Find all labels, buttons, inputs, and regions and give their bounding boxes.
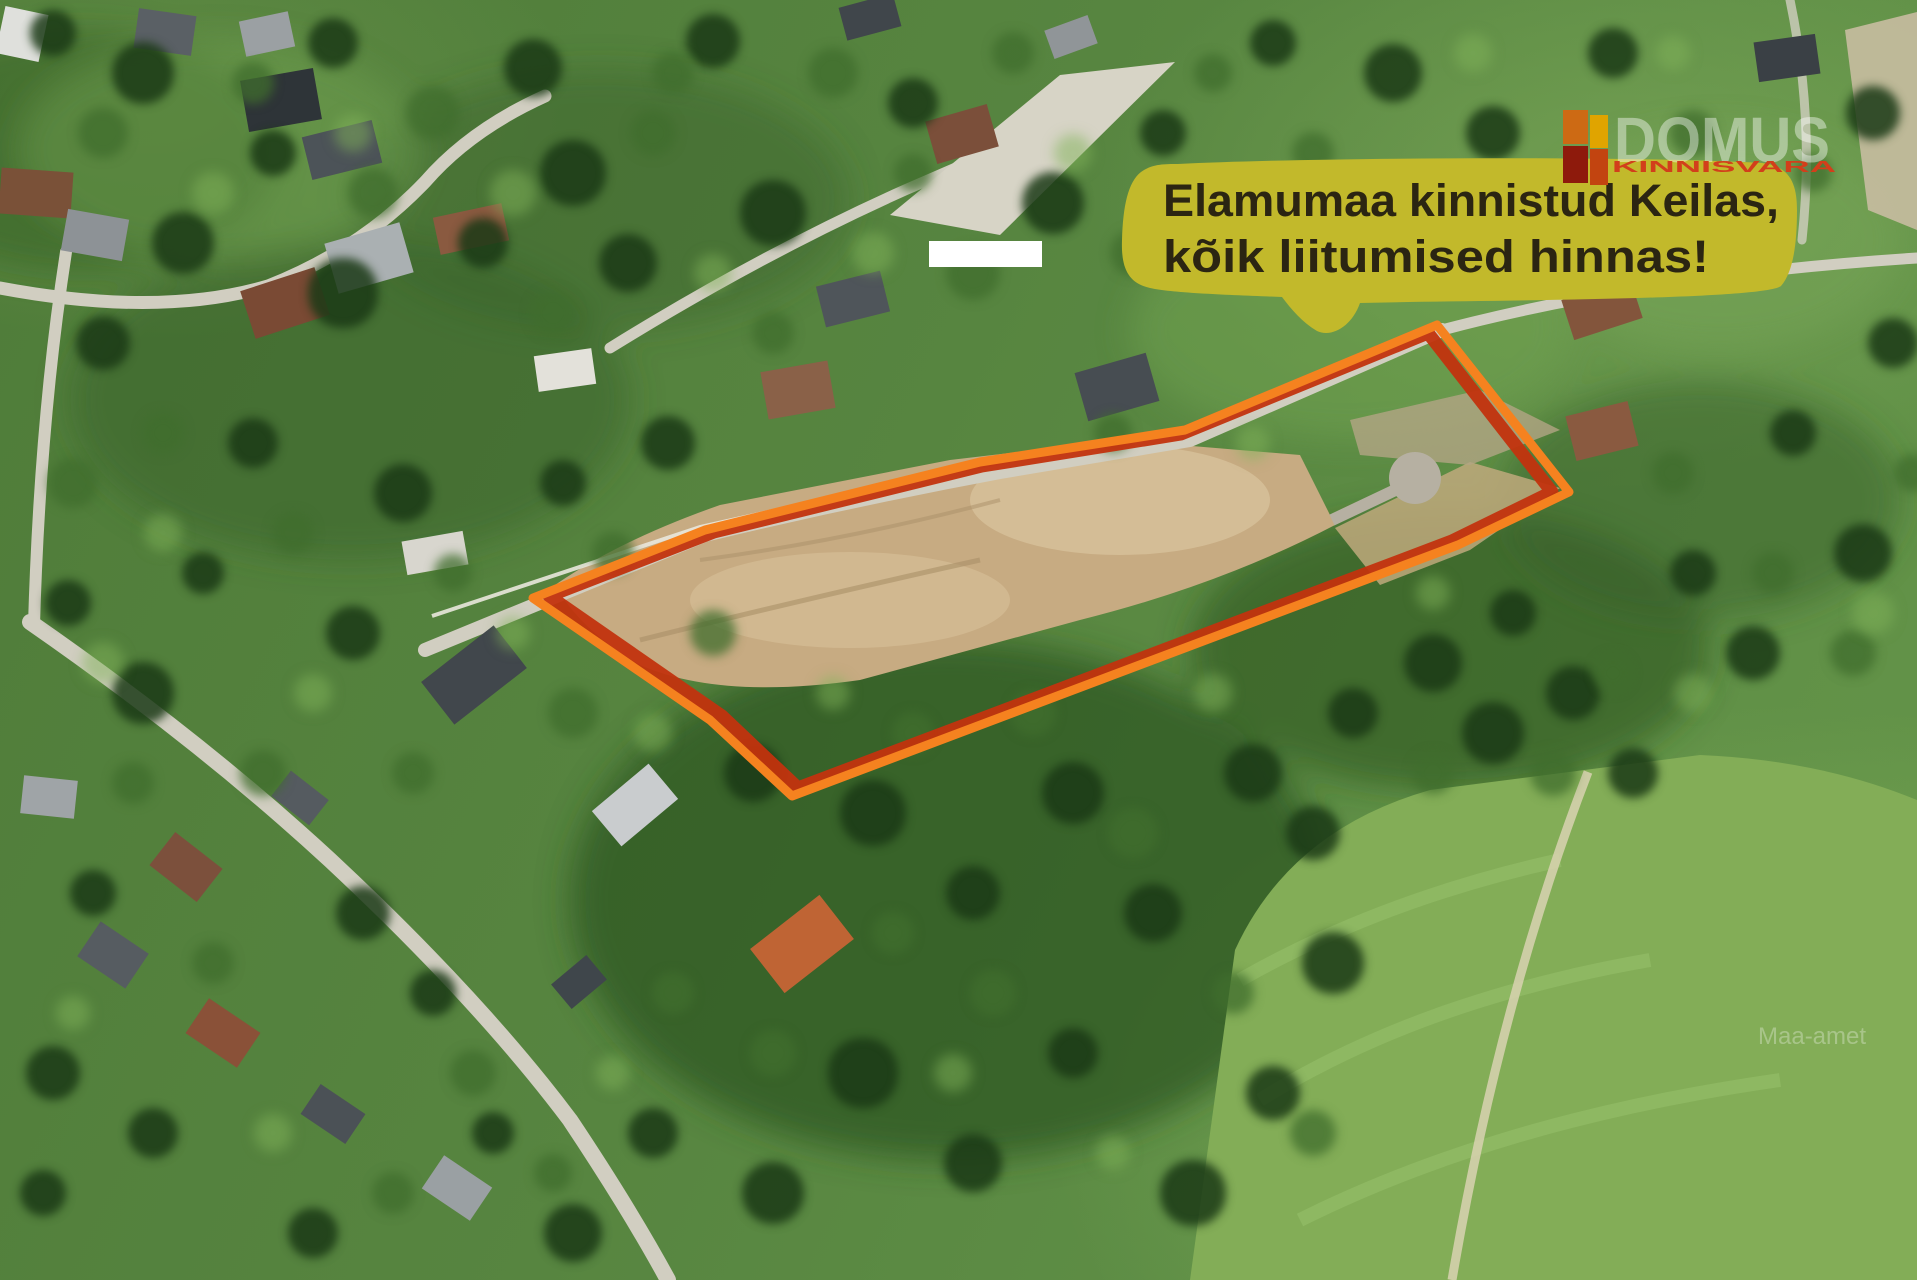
bubble-text-line2: kõik liitumised hinnas! [1163, 231, 1709, 282]
speech-bubble: Elamumaa kinnistud Keilas, kõik liitumis… [1122, 158, 1797, 333]
logo-subtitle: KINNISVARA [1612, 159, 1837, 176]
logo-block-icon [1590, 149, 1608, 185]
source-watermark: Maa-amet [1758, 1023, 1866, 1050]
company-logo: DOMUS KINNISVARA [1563, 104, 1837, 185]
plot-boundary-inner-line [549, 333, 1552, 788]
logo-block-icon [1590, 115, 1608, 148]
logo-block-icon [1563, 110, 1588, 144]
plot-boundary [533, 325, 1569, 796]
aerial-photo: Elamumaa kinnistud Keilas, kõik liitumis… [0, 0, 1917, 1280]
plot-boundary-outer-line [533, 325, 1569, 796]
bubble-text-line1: Elamumaa kinnistud Keilas, [1163, 175, 1779, 226]
logo-block-icon [1563, 146, 1588, 183]
annotation-layer: Elamumaa kinnistud Keilas, kõik liitumis… [0, 0, 1917, 1280]
censor-rectangle [929, 241, 1042, 267]
